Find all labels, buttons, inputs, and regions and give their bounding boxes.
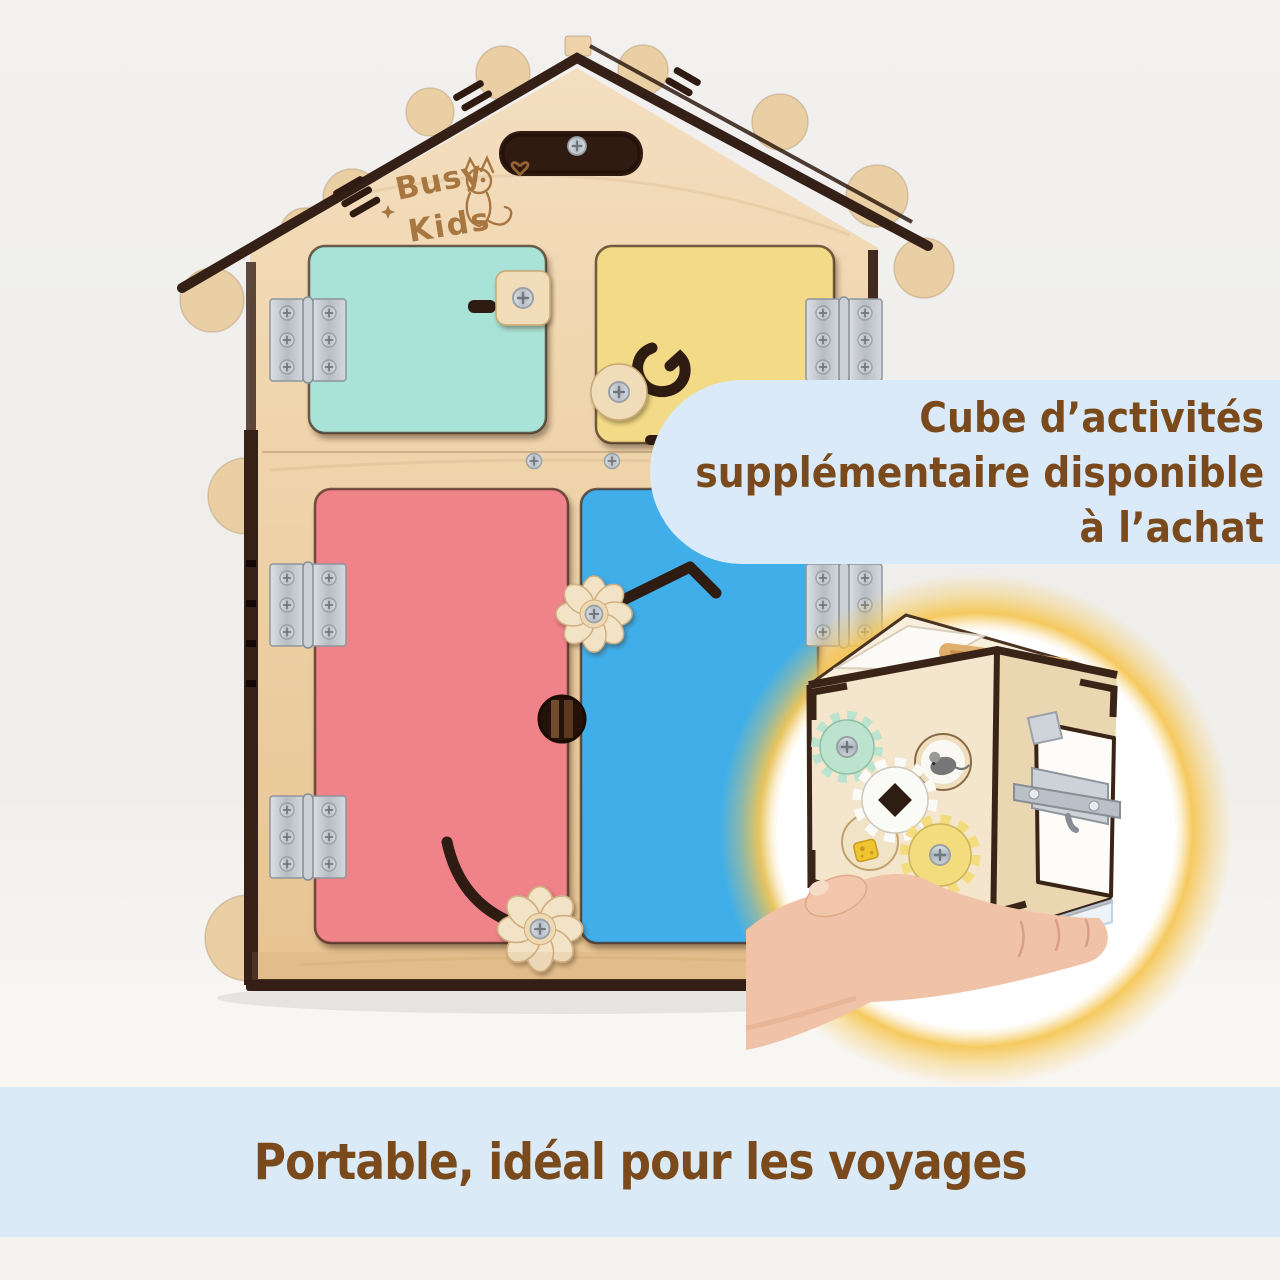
center-peephole — [539, 696, 585, 742]
activity-cube-illustration — [716, 570, 1236, 1090]
banner-text: Portable, idéal pour les voyages — [253, 1133, 1026, 1191]
left-side-edge — [244, 430, 258, 985]
left-side-edge-upper — [246, 262, 256, 437]
square-wood-latch — [496, 271, 550, 325]
red-door — [315, 489, 568, 943]
disc-wood-latch — [591, 364, 647, 420]
cube-inset-circle — [716, 570, 1236, 1090]
callout-line-1: Cube d’activités — [919, 390, 1264, 445]
gear-mint — [817, 717, 877, 777]
hasp-plate — [1028, 712, 1062, 744]
below-banner-strip — [0, 1237, 1280, 1280]
bottom-banner: Portable, idéal pour les voyages — [0, 1087, 1280, 1237]
callout-bubble: Cube d’activités supplémentaire disponib… — [650, 380, 1280, 564]
callout-line-3: à l’achat — [1080, 500, 1264, 555]
gear-white — [859, 764, 931, 836]
mouse-window — [915, 734, 971, 790]
callout-line-2: supplémentaire disponible — [695, 445, 1264, 500]
mint-door-latch-slot — [468, 300, 496, 313]
product-photo-stage: Busy Kids — [0, 0, 1280, 1280]
